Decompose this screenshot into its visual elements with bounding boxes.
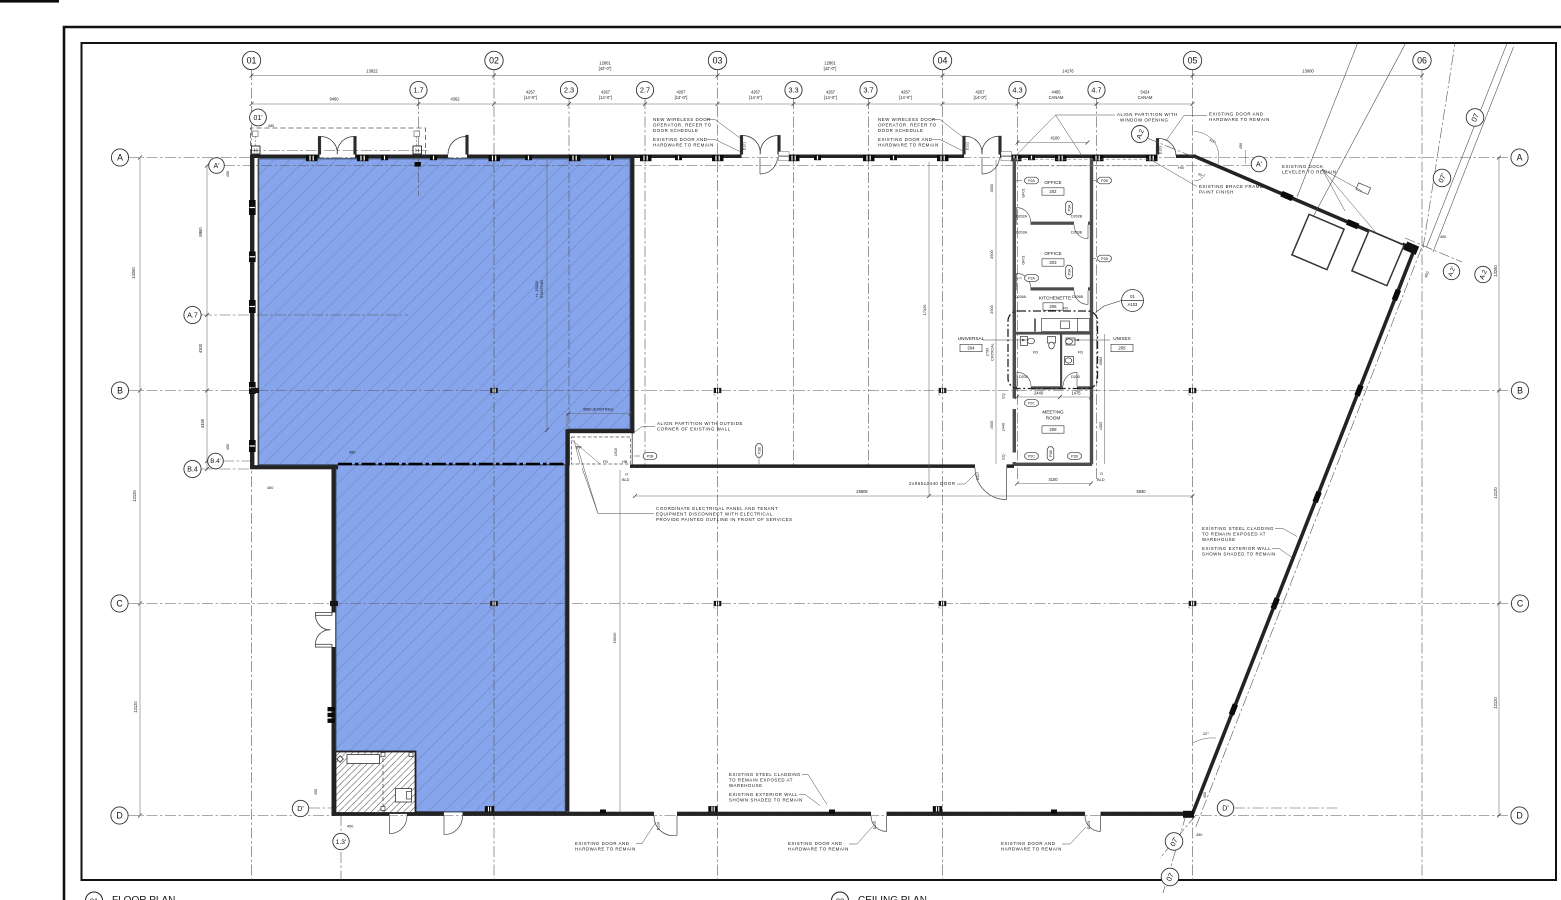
- svg-text:450: 450: [347, 825, 353, 829]
- svg-text:D101: D101: [743, 142, 747, 150]
- svg-text:D104: D104: [1087, 821, 1091, 829]
- svg-text:D202B: D202B: [1071, 215, 1083, 219]
- svg-text:BLD: BLD: [1097, 477, 1105, 482]
- svg-text:CRITICAL: CRITICAL: [990, 342, 995, 361]
- svg-text:P2B: P2B: [647, 454, 654, 458]
- svg-text:2.3: 2.3: [564, 86, 574, 95]
- svg-text:EXISTING: EXISTING: [539, 280, 544, 298]
- svg-text:A': A': [213, 163, 219, 170]
- svg-text:HB: HB: [1178, 166, 1184, 170]
- svg-text:HARDWARE TO REMAIN: HARDWARE TO REMAIN: [575, 847, 636, 852]
- svg-text:9460: 9460: [329, 97, 339, 102]
- svg-text:C: C: [116, 599, 123, 609]
- svg-text:MEETING: MEETING: [1042, 410, 1064, 415]
- svg-text:1.3': 1.3': [336, 839, 346, 846]
- svg-text:3.7: 3.7: [863, 86, 873, 95]
- svg-text:EXISTING DOOR AND: EXISTING DOOR AND: [788, 841, 842, 846]
- svg-text:EXISTING EXTERIOR WALL: EXISTING EXTERIOR WALL: [1202, 546, 1271, 551]
- svg-text:EXISTING STEEL CLADDING: EXISTING STEEL CLADDING: [1202, 526, 1274, 531]
- svg-text:4362: 4362: [450, 97, 460, 102]
- svg-text:OPERATOR. REFER TO: OPERATOR. REFER TO: [653, 123, 712, 128]
- svg-text:4267: 4267: [676, 90, 686, 95]
- svg-text:2x965x2440 DOOR: 2x965x2440 DOOR: [909, 481, 956, 486]
- svg-text:[42'-0"]: [42'-0"]: [824, 66, 837, 71]
- svg-text:204: 204: [967, 346, 975, 351]
- svg-text:203: 203: [1049, 260, 1057, 265]
- svg-text:12120: 12120: [132, 490, 137, 502]
- svg-text:D103: D103: [1159, 146, 1163, 154]
- svg-text:P3A: P3A: [1067, 268, 1071, 275]
- svg-text:205: 205: [1118, 346, 1126, 351]
- svg-text:FD: FD: [1078, 350, 1083, 355]
- svg-text:450: 450: [314, 789, 318, 795]
- svg-text:HB: HB: [622, 460, 628, 464]
- svg-text:[42'-0"]: [42'-0"]: [599, 66, 612, 71]
- svg-text:D204: D204: [1019, 375, 1028, 379]
- svg-text:4100: 4100: [1050, 136, 1060, 141]
- svg-text:C: C: [1517, 599, 1524, 609]
- svg-text:P2C: P2C: [1028, 454, 1035, 458]
- svg-text:CORNER OF EXISTING WALL: CORNER OF EXISTING WALL: [657, 427, 731, 432]
- svg-text:FD: FD: [603, 460, 608, 464]
- svg-text:202: 202: [1049, 189, 1057, 194]
- svg-text:206: 206: [1049, 304, 1057, 309]
- svg-text:D203A: D203A: [1016, 231, 1028, 235]
- svg-text:[14'-0"]: [14'-0"]: [899, 95, 912, 100]
- svg-text:450: 450: [1239, 143, 1243, 149]
- svg-text:P2B: P2B: [1101, 257, 1108, 261]
- svg-text:2440: 2440: [1001, 422, 1006, 431]
- svg-text:450: 450: [1203, 792, 1207, 798]
- svg-text:13000: 13000: [1302, 69, 1314, 74]
- svg-text:3500: 3500: [989, 249, 994, 258]
- svg-text:H: H: [415, 149, 419, 155]
- svg-text:2500: 2500: [989, 304, 994, 313]
- svg-text:4300: 4300: [198, 343, 203, 353]
- svg-text:P3A: P3A: [1067, 204, 1071, 211]
- svg-text:EXISTING DOOR AND: EXISTING DOOR AND: [653, 137, 707, 142]
- svg-text:[14'-0"]: [14'-0"]: [675, 95, 688, 100]
- svg-text:NEW WIRELESS DOOR: NEW WIRELESS DOOR: [653, 117, 711, 122]
- svg-text:01: 01: [247, 56, 257, 66]
- svg-text:ROOM: ROOM: [1046, 416, 1061, 421]
- svg-text:EXISTING DOCK: EXISTING DOCK: [1282, 164, 1324, 169]
- svg-text:B.4: B.4: [187, 467, 198, 474]
- svg-text:450: 450: [226, 444, 230, 450]
- svg-text:B.4': B.4': [210, 458, 220, 465]
- svg-text:D': D': [1222, 806, 1228, 813]
- svg-text:1.7: 1.7: [413, 86, 423, 95]
- svg-text:GF01: GF01: [1022, 188, 1026, 197]
- svg-text:4267: 4267: [975, 90, 985, 95]
- svg-text:A103: A103: [1128, 302, 1138, 307]
- svg-text:PAINT FINISH: PAINT FINISH: [1199, 190, 1234, 195]
- svg-text:D203B: D203B: [1071, 231, 1083, 235]
- svg-text:5424: 5424: [1140, 90, 1150, 95]
- svg-text:CEILING PLAN: CEILING PLAN: [858, 895, 927, 900]
- svg-text:EXISTING DOOR AND: EXISTING DOOR AND: [878, 137, 932, 142]
- svg-text:BLD: BLD: [622, 478, 630, 482]
- svg-text:12120: 12120: [133, 701, 138, 713]
- svg-text:D: D: [116, 811, 122, 821]
- svg-text:HARDWARE TO REMAIN: HARDWARE TO REMAIN: [1209, 117, 1270, 122]
- svg-text:4.3: 4.3: [1012, 86, 1022, 95]
- svg-text:12801: 12801: [599, 61, 611, 66]
- svg-text:EXISTING STEEL CLADDING: EXISTING STEEL CLADDING: [729, 772, 801, 777]
- svg-text:UNIVERSAL: UNIVERSAL: [958, 336, 985, 341]
- svg-text:KITCHENETTE: KITCHENETTE: [1039, 296, 1072, 301]
- svg-text:COORDINATE ELECTRICAL PANEL AN: COORDINATE ELECTRICAL PANEL AND TENANT: [656, 506, 778, 511]
- svg-text:02: 02: [489, 56, 499, 66]
- svg-text:4.7: 4.7: [1091, 86, 1101, 95]
- svg-text:4267: 4267: [751, 90, 761, 95]
- svg-text:D105: D105: [873, 821, 877, 829]
- svg-text:DOOR SCHEDULE: DOOR SCHEDULE: [653, 128, 698, 133]
- svg-text:4485: 4485: [1051, 90, 1061, 95]
- svg-text:450: 450: [1196, 833, 1202, 837]
- svg-text:ALIGN PARTITION WITH OUTSIDE: ALIGN PARTITION WITH OUTSIDE: [657, 421, 743, 426]
- svg-text:3660 (EXISTING): 3660 (EXISTING): [583, 407, 614, 412]
- svg-text:CANAM: CANAM: [1049, 95, 1064, 100]
- svg-text:HARDWARE TO REMAIN: HARDWARE TO REMAIN: [653, 143, 714, 148]
- svg-text:4267: 4267: [601, 90, 611, 95]
- svg-text:D202A: D202A: [1016, 215, 1028, 219]
- svg-text:P2B: P2B: [1101, 179, 1108, 183]
- svg-text:TO REMAIN EXPOSED AT: TO REMAIN EXPOSED AT: [1202, 532, 1266, 537]
- svg-text:14176: 14176: [1062, 69, 1074, 74]
- svg-text:FD: FD: [1063, 306, 1068, 311]
- svg-text:2.7: 2.7: [640, 86, 650, 95]
- svg-text:4505: 4505: [989, 421, 994, 430]
- svg-text:OPERATOR. REFER TO: OPERATOR. REFER TO: [878, 123, 937, 128]
- svg-text:450: 450: [226, 171, 230, 177]
- svg-text:22°: 22°: [1203, 731, 1209, 736]
- svg-text:D': D': [297, 806, 303, 813]
- svg-text:EQUIPMENT DISCONNECT WITH ELEC: EQUIPMENT DISCONNECT WITH ELECTRICAL.: [656, 512, 775, 517]
- svg-text:EXISTING DOOR AND: EXISTING DOOR AND: [575, 841, 629, 846]
- svg-text:25805: 25805: [856, 489, 868, 494]
- svg-text:12120: 12120: [1493, 487, 1498, 499]
- svg-text:EQ: EQ: [1001, 454, 1006, 460]
- svg-text:P2B: P2B: [757, 447, 761, 454]
- svg-text:4267: 4267: [901, 90, 911, 95]
- svg-text:[14'-0"]: [14'-0"]: [749, 95, 762, 100]
- svg-text:208: 208: [1049, 427, 1057, 432]
- svg-text:8960: 8960: [198, 227, 203, 237]
- svg-text:D206A: D206A: [1015, 295, 1027, 299]
- svg-text:CANAM: CANAM: [1138, 95, 1153, 100]
- svg-text:OFFICE: OFFICE: [1044, 180, 1061, 185]
- svg-text:4267: 4267: [526, 90, 536, 95]
- svg-text:ALIGN PARTITION WITH: ALIGN PARTITION WITH: [1117, 112, 1178, 117]
- svg-text:1475: 1475: [1071, 391, 1081, 396]
- svg-text:WAREHOUSE: WAREHOUSE: [729, 783, 763, 788]
- svg-text:[14'-0"]: [14'-0"]: [599, 95, 612, 100]
- svg-text:3083: 3083: [1098, 357, 1103, 366]
- svg-text:P2A: P2A: [1028, 276, 1035, 280]
- svg-text:05: 05: [1188, 56, 1198, 66]
- svg-text:SHOWN SHADED TO REMAIN: SHOWN SHADED TO REMAIN: [729, 798, 803, 803]
- svg-text:450: 450: [349, 451, 355, 455]
- svg-text:B: B: [117, 386, 123, 396]
- svg-text:D205: D205: [1071, 375, 1080, 379]
- svg-text:TO REMAIN EXPOSED AT: TO REMAIN EXPOSED AT: [729, 778, 793, 783]
- svg-text:EXISTING DOOR AND: EXISTING DOOR AND: [1001, 841, 1055, 846]
- svg-text:HARDWARE TO REMAIN: HARDWARE TO REMAIN: [1001, 847, 1062, 852]
- svg-text:A': A': [1256, 162, 1262, 169]
- svg-text:A.7: A.7: [187, 313, 198, 320]
- svg-text:450: 450: [268, 124, 274, 128]
- svg-text:SHOWN SHADED TO REMAIN: SHOWN SHADED TO REMAIN: [1202, 552, 1276, 557]
- svg-text:450: 450: [1440, 235, 1446, 239]
- svg-text:19520: 19520: [612, 632, 617, 644]
- svg-text:FD: FD: [1033, 350, 1038, 355]
- svg-text:A: A: [117, 153, 123, 163]
- svg-text:01: 01: [1130, 294, 1135, 299]
- svg-text:A: A: [1517, 153, 1523, 163]
- svg-text:P2B: P2B: [1049, 450, 1053, 457]
- svg-text:WINDOW OPENING: WINDOW OPENING: [1120, 118, 1168, 123]
- svg-text:[14'-0"]: [14'-0"]: [974, 95, 987, 100]
- svg-text:02: 02: [836, 897, 844, 900]
- svg-text:04: 04: [938, 56, 948, 66]
- svg-text:D102: D102: [966, 142, 970, 150]
- svg-text:FLOOR PLAN: FLOOR PLAN: [112, 895, 175, 900]
- svg-text:3.3: 3.3: [788, 86, 798, 95]
- svg-text:13822: 13822: [366, 69, 378, 74]
- svg-text:O: O: [1100, 471, 1103, 476]
- svg-text:12120: 12120: [1493, 697, 1498, 709]
- svg-text:1915: 1915: [614, 448, 618, 456]
- svg-text:EXISTING EXTERIOR WALL: EXISTING EXTERIOR WALL: [729, 792, 798, 797]
- svg-text:4267: 4267: [826, 90, 836, 95]
- svg-text:H: H: [254, 149, 258, 155]
- svg-text:WAREHOUSE: WAREHOUSE: [1202, 537, 1236, 542]
- svg-text:LEVELER TO REMAIN: LEVELER TO REMAIN: [1282, 170, 1337, 175]
- svg-text:03: 03: [713, 56, 723, 66]
- svg-text:D207: D207: [976, 472, 980, 480]
- svg-text:4455: 4455: [200, 418, 205, 428]
- svg-text:5930: 5930: [1136, 489, 1146, 494]
- svg-text:[14'-0"]: [14'-0"]: [824, 95, 837, 100]
- svg-text:4100: 4100: [1048, 477, 1058, 482]
- svg-text:2440: 2440: [1034, 391, 1044, 396]
- svg-text:12801: 12801: [824, 61, 836, 66]
- svg-text:GF01: GF01: [1022, 255, 1026, 264]
- svg-text:13260: 13260: [131, 267, 136, 279]
- svg-text:[14'-0"]: [14'-0"]: [524, 95, 537, 100]
- svg-text:3500: 3500: [989, 183, 994, 192]
- svg-text:450: 450: [267, 486, 273, 490]
- svg-text:HARDWARE TO REMAIN: HARDWARE TO REMAIN: [788, 847, 849, 852]
- svg-text:EXISTING DOOR AND: EXISTING DOOR AND: [1209, 112, 1263, 117]
- svg-text:P2A: P2A: [1028, 179, 1035, 183]
- svg-text:EQ: EQ: [1001, 393, 1006, 399]
- svg-text:13260: 13260: [1493, 265, 1498, 277]
- svg-text:01': 01': [253, 115, 262, 122]
- svg-text:NEW WIRELESS DOOR: NEW WIRELESS DOOR: [878, 117, 936, 122]
- svg-text:P2B: P2B: [1071, 454, 1078, 458]
- svg-text:06: 06: [1417, 56, 1427, 66]
- svg-text:P2C: P2C: [1028, 401, 1035, 405]
- svg-text:4305: 4305: [1098, 422, 1103, 431]
- svg-text:HARDWARE TO REMAIN: HARDWARE TO REMAIN: [878, 143, 939, 148]
- svg-text:D206B: D206B: [1072, 295, 1084, 299]
- svg-text:01: 01: [90, 897, 98, 900]
- svg-text:D: D: [1516, 811, 1522, 821]
- svg-text:17320: 17320: [922, 304, 927, 316]
- svg-text:EXISTING BRACE FRAME.: EXISTING BRACE FRAME.: [1199, 184, 1265, 189]
- svg-text:B: B: [1517, 386, 1523, 396]
- svg-text:O: O: [625, 473, 628, 477]
- svg-text:UNISEX: UNISEX: [1113, 336, 1131, 341]
- svg-text:OFFICE: OFFICE: [1044, 251, 1061, 256]
- svg-text:DOOR SCHEDULE: DOOR SCHEDULE: [878, 128, 923, 133]
- svg-text:D106: D106: [657, 822, 661, 830]
- svg-text:PROVIDE PAINTED OUTLINE IN FRO: PROVIDE PAINTED OUTLINE IN FRONT OF SERV…: [656, 517, 793, 522]
